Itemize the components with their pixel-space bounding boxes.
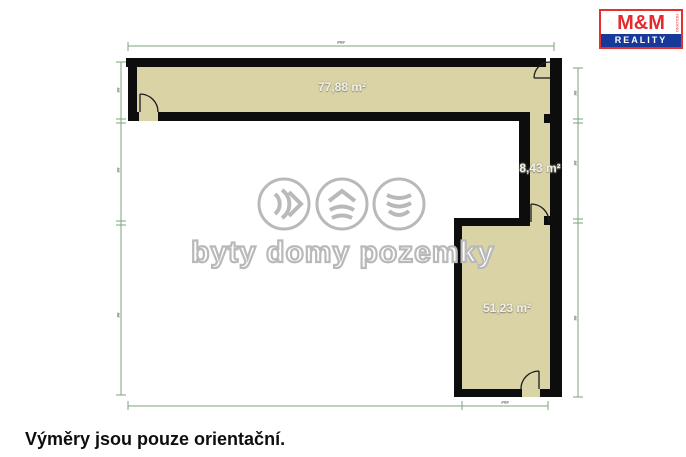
wall-toproom-bottom-left [128,112,139,121]
watermark-icons [242,174,442,236]
dim-value-left-middle: ## [116,167,121,173]
dim-value-bottom-right: ### [501,400,509,405]
watermark-slogan: byty domy pozemky [143,236,543,270]
disclaimer-caption: Výměry jsou pouze orientační. [25,429,285,450]
area-label-corridor: 8,43 m² [490,161,590,175]
wall-top [126,58,546,67]
logo-brand-text: M&M [601,11,681,34]
area-label-bottom-right-room: 51,23 m² [432,301,582,315]
logo-holding-text: HOLDING [675,14,680,32]
dim-ticks-bottom [128,401,548,410]
dim-value-right-upper: ## [573,90,578,96]
dim-value-left-lower: ## [116,312,121,318]
dim-ticks-right [573,68,583,397]
wall-room-bottom-right [540,389,562,397]
floorplan-page: ### ### ## ## ## ## ## ## 77,88 m² 8,43 … [0,0,686,457]
wall-room-bottom-left [454,389,522,397]
logo-reality-text: REALITY [601,34,681,47]
wall-toproom-bottom [158,112,519,121]
dim-value-left-upper: ## [116,87,121,93]
area-label-top-room: 77,88 m² [267,80,417,94]
dim-ticks-left [116,62,126,395]
wall-right [550,58,562,397]
roof-up-icon [317,179,367,229]
dim-ticks-top [128,42,554,51]
wall-stub-lower [544,216,551,225]
dim-value-right-lower: ## [573,315,578,321]
wall-stub-upper [544,114,551,123]
mm-reality-logo: M&M HOLDING REALITY [599,9,683,49]
waves-down-icon [374,179,424,229]
dim-value-top: ### [337,40,345,45]
wall-room-top [454,218,530,226]
signal-right-icon [259,179,309,229]
